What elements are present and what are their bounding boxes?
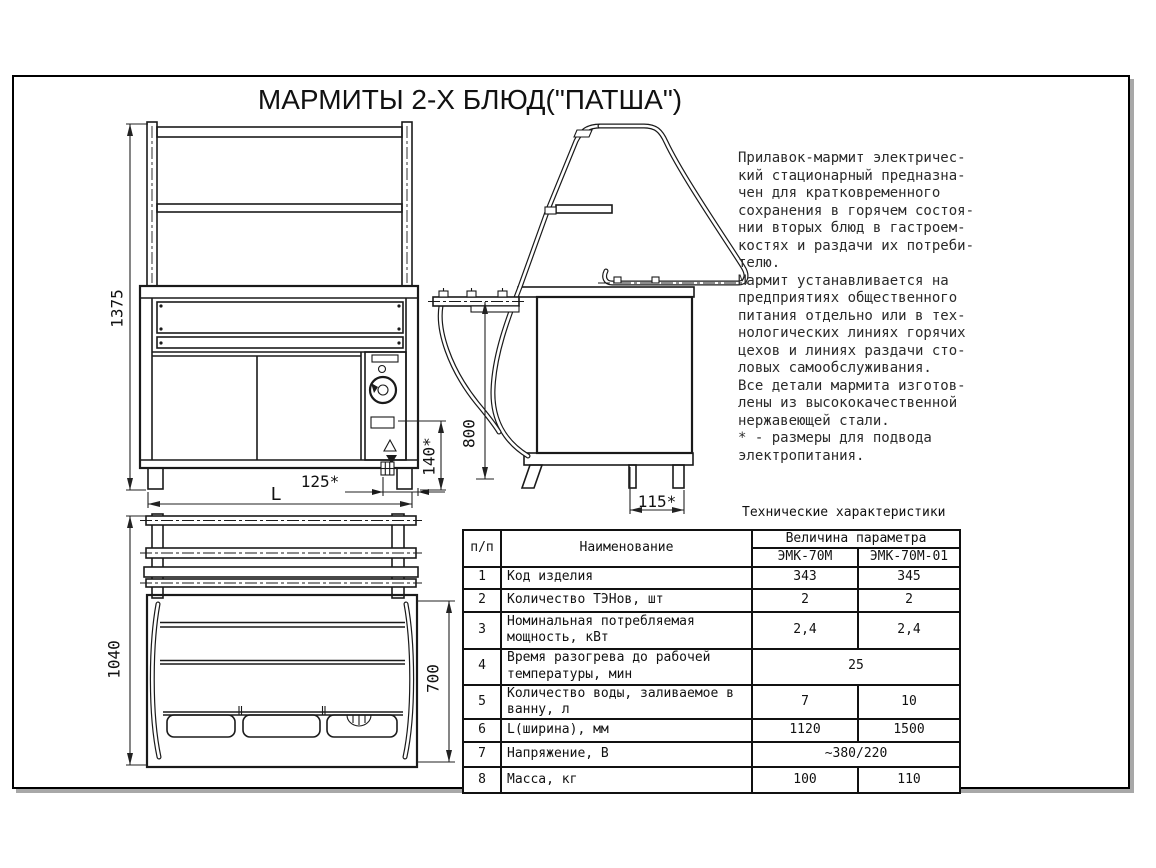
row-value-1: 1120 (752, 719, 858, 742)
description-line: Все детали мармита изготов- (738, 378, 972, 396)
row-value-2: 110 (858, 767, 960, 793)
row-value-2: 1500 (858, 719, 960, 742)
description-line: предприятиях общественного (738, 290, 972, 308)
dim-label-elec-height: 140* (420, 435, 439, 479)
row-num: 6 (463, 719, 501, 742)
description-line: ловых самообслуживания. (738, 360, 972, 378)
row-value-2: 2,4 (858, 612, 960, 649)
row-value-1: 2,4 (752, 612, 858, 649)
description-line: нержавеющей стали. (738, 413, 972, 431)
table-row: 3 Номинальная потребляемая мощность, кВт… (463, 612, 960, 649)
table-row: 2 Количество ТЭНов, шт 2 2 (463, 589, 960, 612)
row-num: 1 (463, 567, 501, 589)
row-name: Масса, кг (501, 767, 752, 793)
description-line: нологических линиях горячих (738, 325, 972, 343)
row-num: 7 (463, 742, 501, 767)
col-header-model2: ЭМК-70М-01 (858, 548, 960, 566)
dim-label-side-offset: 115* (634, 492, 680, 511)
row-name: Напряжение, В (501, 742, 752, 767)
row-name: L(ширина), мм (501, 719, 752, 742)
row-name: Время разогрева до рабочей температуры, … (501, 649, 752, 685)
row-value-1: 7 (752, 685, 858, 720)
row-num: 5 (463, 685, 501, 720)
col-header-model1: ЭМК-70М (752, 548, 858, 566)
description-line: питания отдельно или в тех- (738, 308, 972, 326)
spec-table-title: Технические характеристики (742, 505, 946, 520)
row-name: Количество воды, заливаемое в ванну, л (501, 685, 752, 720)
row-value-merged: 25 (752, 649, 960, 685)
dim-label-front-height: 1375 (108, 274, 127, 344)
description-line: сохранения в горячем состоя- (738, 203, 972, 221)
front-view-drawing (140, 122, 418, 489)
row-value-2: 10 (858, 685, 960, 720)
col-header-name: Наименование (501, 530, 752, 567)
description-line: Прилавок-мармит электричес- (738, 150, 972, 168)
row-value-2: 345 (858, 567, 960, 589)
row-num: 3 (463, 612, 501, 649)
row-value-1: 100 (752, 767, 858, 793)
table-row: 1 Код изделия 343 345 (463, 567, 960, 589)
top-view-drawing (140, 514, 422, 767)
drawing-sheet: МАРМИТЫ 2-Х БЛЮД("ПАТША") Прилавок-марми… (0, 0, 1156, 868)
dim-label-front-width: L (266, 484, 286, 505)
table-row: 6 L(ширина), мм 1120 1500 (463, 719, 960, 742)
row-value-1: 343 (752, 567, 858, 589)
row-value-merged: ~380/220 (752, 742, 960, 767)
table-row: 5 Количество воды, заливаемое в ванну, л… (463, 685, 960, 720)
page-title: МАРМИТЫ 2-Х БЛЮД("ПАТША") (160, 84, 780, 116)
row-num: 4 (463, 649, 501, 685)
col-header-num: п/п (463, 530, 501, 567)
description-line: Мармит устанавливается на (738, 273, 972, 291)
dim-label-top-depth: 1040 (105, 630, 124, 690)
description-line: электропитания. (738, 448, 972, 466)
row-name: Номинальная потребляемая мощность, кВт (501, 612, 752, 649)
dim-label-top-inner-depth: 700 (424, 657, 443, 701)
description-line: лены из высококачественной (738, 395, 972, 413)
description-line: чен для кратковременного (738, 185, 972, 203)
front-view-dimensions (126, 124, 446, 508)
description-line: цехов и линиях раздачи сто- (738, 343, 972, 361)
description-line: костях и раздачи их потреби- (738, 238, 972, 256)
dim-label-side-height: 800 (460, 412, 479, 456)
row-name: Код изделия (501, 567, 752, 589)
spec-table: п/п Наименование Величина параметра ЭМК-… (462, 529, 961, 794)
row-num: 2 (463, 589, 501, 612)
description-line: нии вторых блюд в гастроем- (738, 220, 972, 238)
row-num: 8 (463, 767, 501, 793)
description-line: кий стационарный предназна- (738, 168, 972, 186)
col-header-value-group: Величина параметра (752, 530, 960, 548)
description-line: телю. (738, 255, 972, 273)
row-value-1: 2 (752, 589, 858, 612)
row-value-2: 2 (858, 589, 960, 612)
dim-label-elec-offset: 125* (296, 472, 344, 491)
table-row: 8 Масса, кг 100 110 (463, 767, 960, 793)
table-row: 7 Напряжение, В ~380/220 (463, 742, 960, 767)
row-name: Количество ТЭНов, шт (501, 589, 752, 612)
table-row: 4 Время разогрева до рабочей температуры… (463, 649, 960, 685)
description-line: * - размеры для подвода (738, 430, 972, 448)
side-view-dimensions (476, 302, 684, 514)
description-block: Прилавок-мармит электричес- кий стациона… (738, 150, 972, 465)
